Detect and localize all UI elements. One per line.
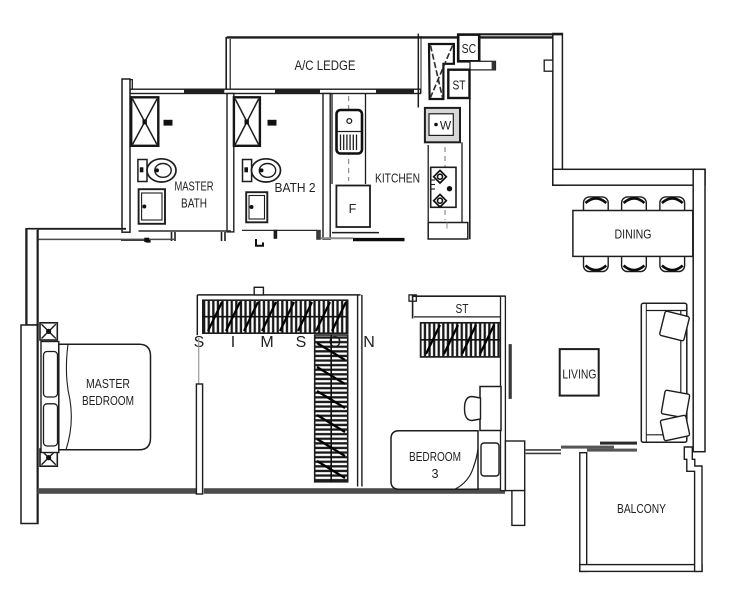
svg-text:A/C LEDGE: A/C LEDGE [295, 58, 356, 73]
svg-text:BEDROOM: BEDROOM [409, 450, 461, 464]
svg-text:BEDROOM: BEDROOM [82, 394, 134, 408]
svg-text:DINING: DINING [615, 228, 652, 242]
svg-text:MASTER: MASTER [86, 377, 130, 391]
svg-text:S: S [296, 334, 307, 351]
svg-text:W: W [440, 119, 452, 133]
svg-text:3: 3 [431, 467, 438, 481]
svg-text:ST: ST [456, 302, 469, 316]
svg-text:M: M [260, 334, 273, 351]
svg-text:BATH 2: BATH 2 [275, 181, 316, 195]
svg-text:KITCHEN: KITCHEN [375, 172, 420, 186]
svg-text:I: I [231, 334, 235, 351]
svg-text:F: F [349, 202, 357, 216]
svg-text:BATH: BATH [181, 197, 207, 211]
svg-text:N: N [363, 334, 375, 351]
svg-text:ST: ST [453, 79, 466, 93]
svg-text:LIVING: LIVING [562, 368, 596, 382]
svg-text:SC: SC [462, 42, 477, 56]
svg-text:BALCONY: BALCONY [617, 502, 666, 516]
svg-text:MASTER: MASTER [175, 180, 214, 194]
